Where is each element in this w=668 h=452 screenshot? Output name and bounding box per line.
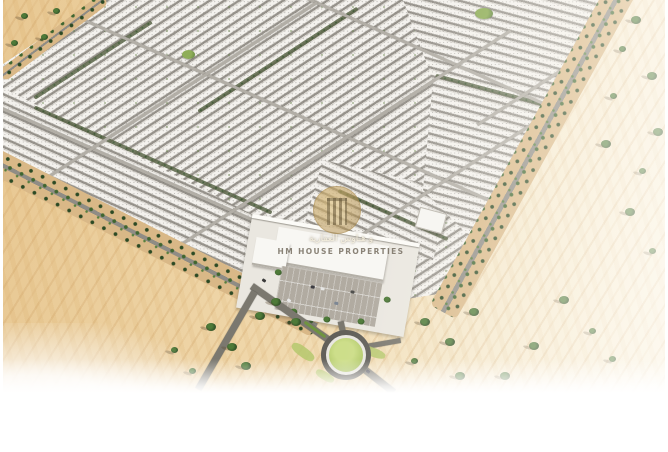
palm-tree xyxy=(653,128,663,136)
masterplan-aerial-render: و هـاوس العقارية HM HOUSE PROPERTIES xyxy=(3,0,665,393)
palm-tree xyxy=(53,8,60,14)
tree-lined-row xyxy=(197,7,359,114)
palm-tree xyxy=(529,342,539,350)
palm-tree xyxy=(255,312,265,320)
palm-tree xyxy=(619,46,626,52)
palm-tree xyxy=(601,140,611,148)
palm-tree xyxy=(21,13,28,19)
palm-tree xyxy=(610,93,617,99)
internal-street xyxy=(48,1,318,178)
parked-car xyxy=(311,285,315,289)
parked-car xyxy=(320,287,324,291)
parked-car xyxy=(350,290,354,294)
palm-tree xyxy=(631,16,641,24)
palm-tree xyxy=(411,358,418,364)
roundabout xyxy=(321,330,371,380)
palm-tree xyxy=(609,356,616,362)
photo-edge-fade xyxy=(3,323,243,393)
roundabout-grass-center xyxy=(326,335,366,375)
community-park xyxy=(475,8,493,19)
community-park xyxy=(182,50,195,59)
listing-photo-frame: و هـاوس العقارية HM HOUSE PROPERTIES xyxy=(0,0,668,452)
palm-tree xyxy=(189,368,196,374)
palm-tree xyxy=(420,318,430,326)
palm-tree xyxy=(227,343,237,351)
grass-verge xyxy=(290,340,317,363)
palm-tree xyxy=(469,308,479,316)
palm-tree xyxy=(625,208,635,216)
palm-tree xyxy=(271,298,281,306)
palm-tree xyxy=(649,248,656,254)
palm-tree xyxy=(41,34,48,40)
palm-tree xyxy=(589,328,596,334)
palm-tree xyxy=(455,372,465,380)
parked-car xyxy=(334,302,338,306)
palm-tree xyxy=(647,72,657,80)
palm-tree xyxy=(206,323,216,331)
palm-tree xyxy=(291,318,301,326)
palm-tree xyxy=(241,362,251,370)
palm-tree xyxy=(500,372,510,380)
palm-tree xyxy=(559,296,569,304)
palm-tree xyxy=(11,40,18,46)
road-southwest-exit xyxy=(195,290,258,391)
palm-tree xyxy=(171,347,178,353)
palm-tree xyxy=(639,168,646,174)
palm-tree xyxy=(445,338,455,346)
